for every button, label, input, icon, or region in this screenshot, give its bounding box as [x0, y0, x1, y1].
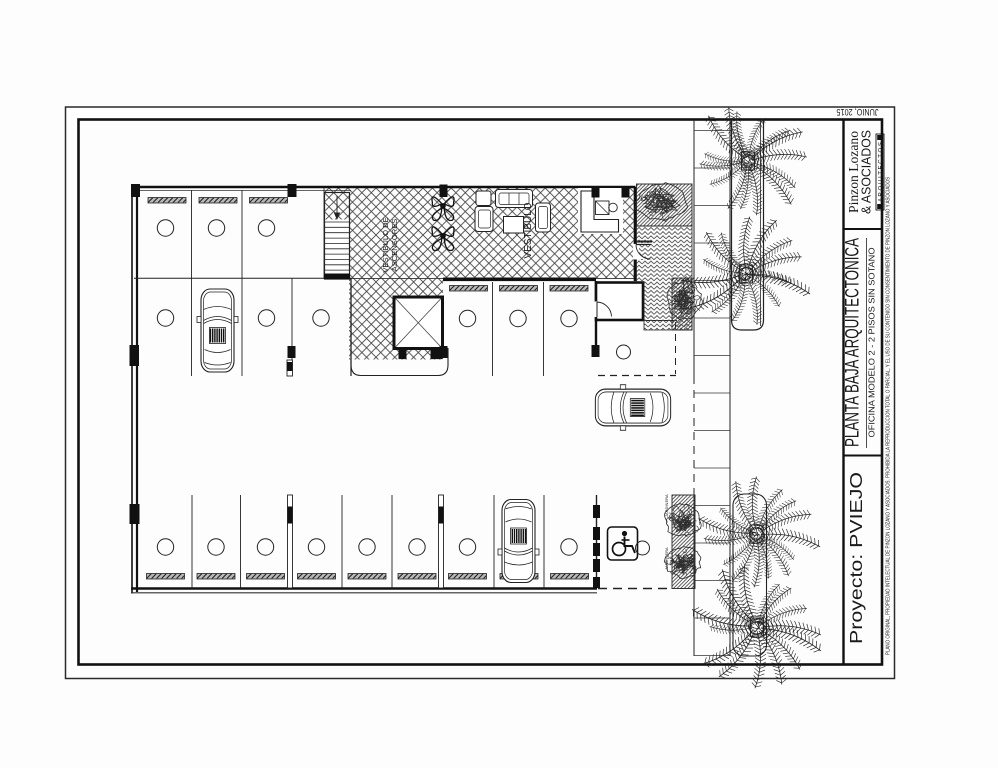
svg-text:OFICINA MODELO 2 - 2 PISOS SIN: OFICINA MODELO 2 - 2 PISOS SIN SOTANO [867, 247, 877, 437]
svg-text:VESTIBULO DE: VESTIBULO DE [381, 217, 390, 272]
svg-text:A R Q U I T E C T O S: A R Q U I T E C T O S [879, 142, 885, 202]
svg-text:Proyecto: PVIEJO: Proyecto: PVIEJO [846, 472, 866, 644]
svg-text:ASCENSORES: ASCENSORES [390, 219, 399, 272]
svg-text:PLANTA BAJA ARQUITECTONICA: PLANTA BAJA ARQUITECTONICA [843, 238, 864, 447]
svg-text:VESTIBULO: VESTIBULO [523, 202, 534, 258]
svg-text:& ASOCIADOS: & ASOCIADOS [859, 130, 874, 214]
svg-text:JUNIO, 2015: JUNIO, 2015 [837, 106, 879, 117]
svg-text:PLANO ORIGINAL, PROPIEDAD INTE: PLANO ORIGINAL, PROPIEDAD INTELECTUAL DE… [886, 177, 892, 655]
